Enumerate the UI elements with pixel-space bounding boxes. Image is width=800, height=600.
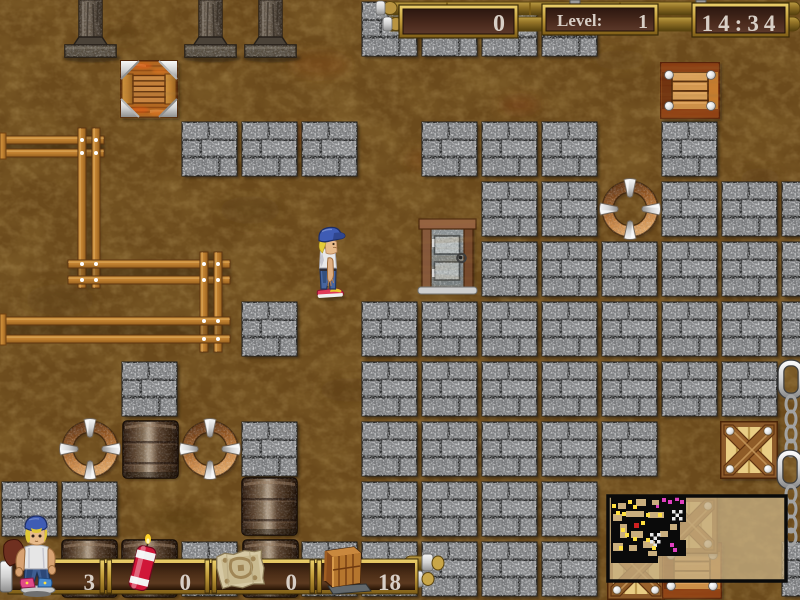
svg-text:18: 18 [378, 570, 401, 595]
svg-text:3: 3 [84, 570, 96, 595]
svg-text:0: 0 [493, 11, 505, 37]
svg-text:Level:: Level: [557, 11, 602, 30]
svg-text:0: 0 [286, 570, 298, 595]
svg-text:0: 0 [180, 570, 192, 595]
svg-text:1: 1 [638, 11, 648, 33]
svg-text:14:34: 14:34 [702, 11, 781, 36]
